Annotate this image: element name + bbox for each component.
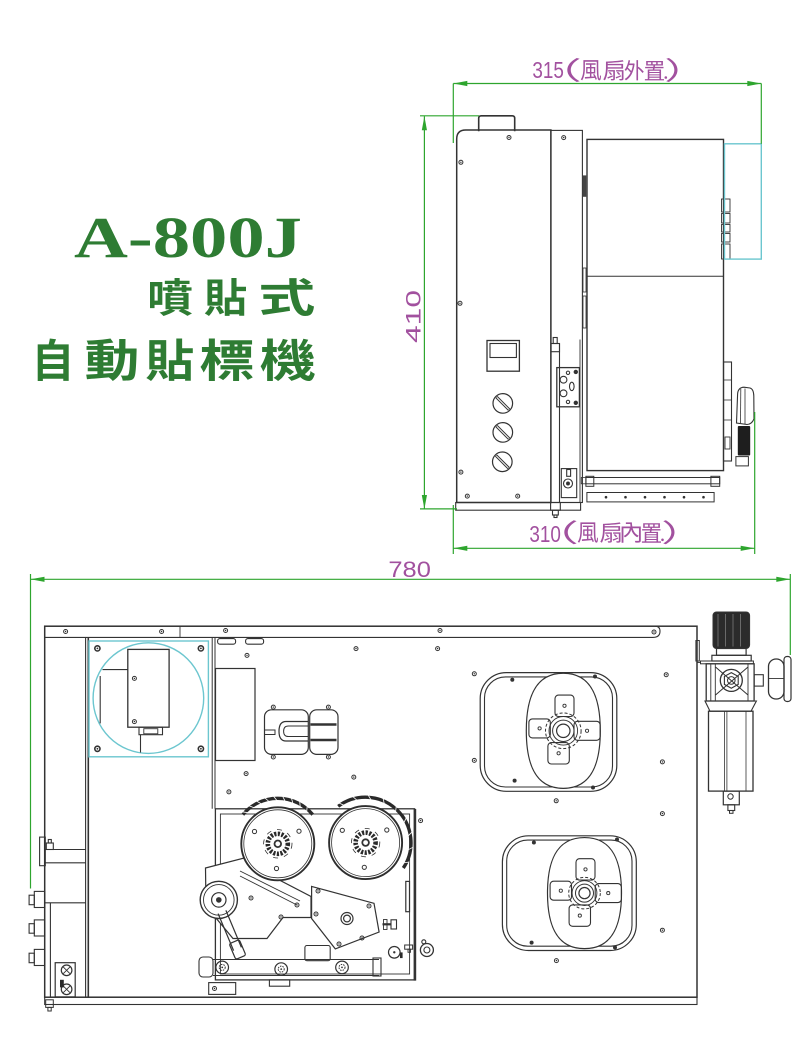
svg-text:410: 410 — [401, 290, 425, 343]
svg-text:315: 315 — [532, 57, 564, 83]
svg-text:780: 780 — [388, 557, 431, 582]
svg-text:A-800J: A-800J — [74, 205, 302, 270]
svg-text:310: 310 — [529, 521, 561, 547]
